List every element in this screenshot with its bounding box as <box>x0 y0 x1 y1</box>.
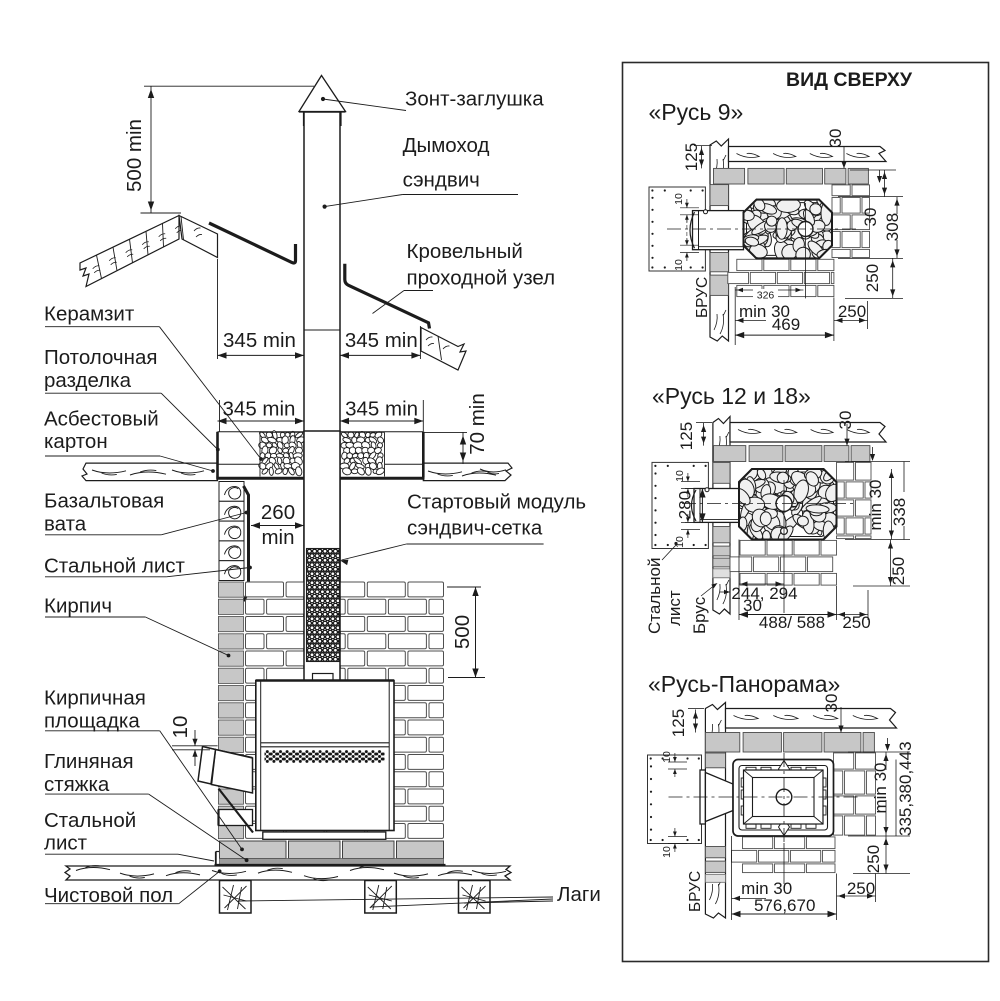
svg-text:30: 30 <box>836 411 855 430</box>
svg-text:min: min <box>261 526 294 549</box>
svg-text:244, 294: 244, 294 <box>731 584 797 603</box>
svg-text:Стартовый модуль: Стартовый модуль <box>407 491 586 514</box>
svg-text:335,380,443: 335,380,443 <box>896 741 915 836</box>
svg-text:Кирпичная: Кирпичная <box>44 687 146 710</box>
svg-text:70 min: 70 min <box>466 393 489 455</box>
svg-text:Зонт-заглушка: Зонт-заглушка <box>405 88 544 111</box>
svg-text:min 30: min 30 <box>871 762 890 813</box>
svg-text:10: 10 <box>169 716 192 739</box>
svg-text:125: 125 <box>682 143 701 171</box>
svg-text:500: 500 <box>451 615 474 649</box>
svg-text:280: 280 <box>676 491 695 519</box>
svg-text:проходной узел: проходной узел <box>407 267 556 290</box>
svg-text:10: 10 <box>673 193 685 205</box>
svg-text:469: 469 <box>772 315 800 334</box>
svg-text:308: 308 <box>883 213 902 241</box>
svg-text:Керамзит: Керамзит <box>44 303 135 326</box>
svg-text:разделка: разделка <box>44 369 132 392</box>
svg-text:345 min: 345 min <box>223 398 296 421</box>
svg-text:площадка: площадка <box>44 710 140 733</box>
svg-text:30: 30 <box>822 694 841 713</box>
svg-text:Кровельный: Кровельный <box>407 240 523 263</box>
svg-text:345 min: 345 min <box>345 329 418 352</box>
svg-text:250: 250 <box>863 264 882 292</box>
svg-text:ВИД СВЕРХУ: ВИД СВЕРХУ <box>786 69 913 91</box>
svg-text:10: 10 <box>661 751 673 763</box>
svg-text:500 min: 500 min <box>123 119 146 192</box>
svg-text:Стальной: Стальной <box>44 809 136 832</box>
svg-text:Лаги: Лаги <box>557 883 601 906</box>
svg-text:Потолочная: Потолочная <box>44 346 157 369</box>
svg-text:Глиняная: Глиняная <box>44 750 134 773</box>
svg-text:min 30: min 30 <box>866 479 885 530</box>
svg-text:30: 30 <box>826 129 845 148</box>
svg-text:Стальной лист: Стальной лист <box>44 554 186 577</box>
svg-text:Брус: Брус <box>690 596 709 634</box>
svg-text:Стальной: Стальной <box>645 558 664 634</box>
svg-text:сэндвич: сэндвич <box>403 169 480 192</box>
svg-text:326: 326 <box>757 290 775 302</box>
svg-text:250: 250 <box>889 557 908 585</box>
svg-text:Кирпич: Кирпич <box>44 595 112 618</box>
svg-text:10: 10 <box>661 846 673 858</box>
svg-text:Асбестовый: Асбестовый <box>44 408 159 431</box>
svg-text:338: 338 <box>890 498 909 526</box>
svg-text:10: 10 <box>673 259 685 271</box>
svg-text:345 min: 345 min <box>223 329 296 352</box>
svg-text:250: 250 <box>847 879 875 898</box>
svg-text:Дымоход: Дымоход <box>403 134 490 157</box>
svg-text:«Русь-Панорама»: «Русь-Панорама» <box>648 671 840 697</box>
svg-text:картон: картон <box>44 430 108 453</box>
svg-text:«Русь 12 и 18»: «Русь 12 и 18» <box>652 383 811 409</box>
svg-text:БРУС: БРУС <box>694 277 711 318</box>
svg-text:250: 250 <box>838 302 866 321</box>
svg-text:125: 125 <box>669 709 688 737</box>
svg-text:БРУС: БРУС <box>687 871 704 912</box>
svg-text:488/ 588: 488/ 588 <box>759 613 825 632</box>
svg-text:вата: вата <box>44 512 87 535</box>
svg-text:Базальтовая: Базальтовая <box>44 490 164 513</box>
svg-text:30: 30 <box>861 208 880 227</box>
svg-text:250: 250 <box>842 613 870 632</box>
svg-text:345 min: 345 min <box>345 398 418 421</box>
svg-text:сэндвич-сетка: сэндвич-сетка <box>407 517 543 540</box>
svg-text:260: 260 <box>261 501 295 524</box>
svg-text:лист: лист <box>44 832 88 855</box>
svg-text:стяжка: стяжка <box>44 773 110 796</box>
svg-text:10: 10 <box>674 470 686 482</box>
svg-text:лист: лист <box>665 590 684 626</box>
svg-text:250: 250 <box>864 845 883 873</box>
svg-text:125: 125 <box>677 422 696 450</box>
svg-text:576,670: 576,670 <box>754 896 815 915</box>
svg-text:«Русь 9»: «Русь 9» <box>649 99 744 125</box>
